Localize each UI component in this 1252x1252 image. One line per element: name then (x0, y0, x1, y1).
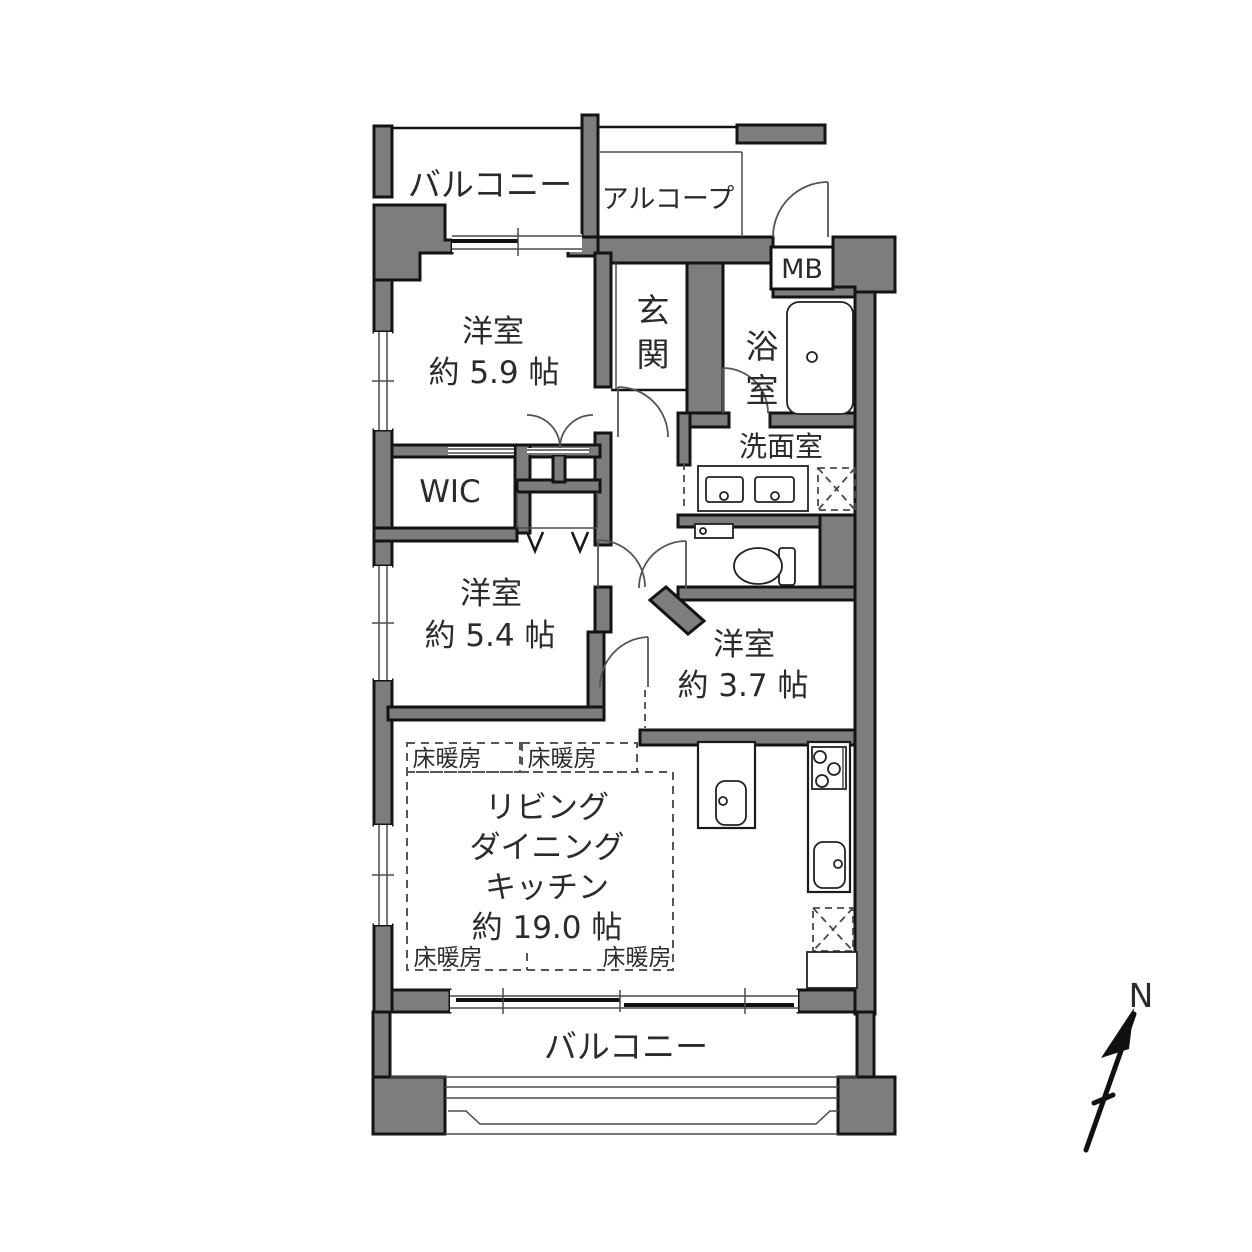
label-bedroom-a-size: 約 5.9 帖 (428, 355, 559, 391)
label-ldk-line3: キッチン (485, 870, 609, 906)
label-ldk-line2: ダイニング (470, 830, 625, 866)
wall-segment (857, 1012, 874, 1078)
toilet-bowl (734, 548, 782, 584)
label-ldk-size: 約 19.0 帖 (472, 910, 623, 946)
closet-double-door-arc (527, 415, 560, 448)
wall-segment (687, 263, 723, 413)
closet-slider-bg (448, 447, 514, 455)
label-ldk-line1: リビング (485, 790, 609, 826)
folding-door-chevron (527, 532, 543, 551)
label-entrance-char2: 関 (637, 335, 670, 374)
label-balcony-top: バルコニー (408, 165, 572, 204)
wall-segment (374, 925, 392, 1012)
wall-segment (392, 990, 450, 1012)
bedroom-a-door-arc (618, 387, 668, 437)
railing-step (448, 1111, 838, 1124)
compass-arrowhead-icon (1101, 1008, 1134, 1058)
wall-segment (374, 126, 392, 197)
wall-segment (737, 125, 825, 143)
floorplan-canvas: バルコニー アルコープ MB 玄 関 浴 室 洗面室 WIC 洋室 約 5.9 … (0, 0, 1252, 1252)
wall-segment (595, 587, 611, 632)
label-bathroom-char2: 室 (746, 371, 779, 410)
label-bathroom-char1: 浴 (746, 327, 779, 366)
wall-segment (833, 237, 895, 292)
toilet-door-arc (639, 541, 686, 588)
vanity-sink-right (755, 477, 794, 502)
washing-machine-space (818, 468, 855, 510)
wall-segment (374, 205, 452, 280)
wall-segment (855, 292, 875, 1014)
label-washroom: 洗面室 (739, 430, 823, 463)
label-entrance-char1: 玄 (637, 291, 670, 330)
wall-segment (388, 707, 604, 720)
label-balcony-bottom: バルコニー (544, 1027, 708, 1066)
wall-segment (838, 1077, 895, 1134)
wall-segment (598, 237, 773, 263)
label-floor-heating-1: 床暖房 (413, 746, 482, 772)
toilet (695, 524, 795, 585)
wall-segment (687, 413, 729, 427)
label-alcove: アルコープ (602, 184, 735, 215)
entrance-door-arc (773, 182, 828, 237)
label-bedroom-c-name: 洋室 (713, 627, 775, 663)
label-bedroom-c-size: 約 3.7 帖 (677, 668, 808, 704)
balcony-railing (445, 1087, 838, 1134)
wall-segment (770, 413, 855, 427)
label-meter-box: MB (781, 254, 823, 285)
wall-segment (374, 280, 392, 332)
wall-segment (374, 680, 392, 825)
wall-segment (678, 413, 690, 465)
wall-segment (595, 253, 611, 387)
wall-segment (374, 528, 517, 541)
kitchen-second-sink (814, 842, 845, 888)
wall-segment (582, 115, 598, 255)
wall-segment (553, 455, 565, 482)
label-bedroom-a-name: 洋室 (462, 314, 524, 350)
label-bedroom-b-name: 洋室 (460, 576, 522, 612)
floorplan-drawing: バルコニー アルコープ MB 玄 関 浴 室 洗面室 WIC 洋室 約 5.9 … (0, 0, 1252, 1252)
wall-segment (678, 587, 855, 600)
compass-north-label: N (1129, 976, 1154, 1015)
refrigerator-space (813, 908, 853, 951)
label-floor-heating-3: 床暖房 (414, 945, 483, 971)
wall-segment (373, 1077, 445, 1134)
kitchen-cupboard (807, 952, 857, 988)
folding-door-chevron (572, 532, 588, 551)
bedroom-c-door-arc (600, 637, 648, 687)
wall-segment (373, 1012, 390, 1078)
label-floor-heating-4: 床暖房 (603, 945, 672, 971)
bathtub (787, 302, 853, 414)
wall-segment (374, 430, 392, 533)
closet-double-door-arc (560, 415, 593, 448)
compass: N (1086, 976, 1153, 1150)
label-wic: WIC (419, 474, 480, 510)
bedroom-b-door-arc (598, 540, 645, 587)
label-floor-heating-2: 床暖房 (528, 746, 597, 772)
label-bedroom-b-size: 約 5.4 帖 (424, 618, 555, 654)
washing-machine-x (818, 468, 855, 510)
vanity-sink-left (706, 477, 743, 502)
